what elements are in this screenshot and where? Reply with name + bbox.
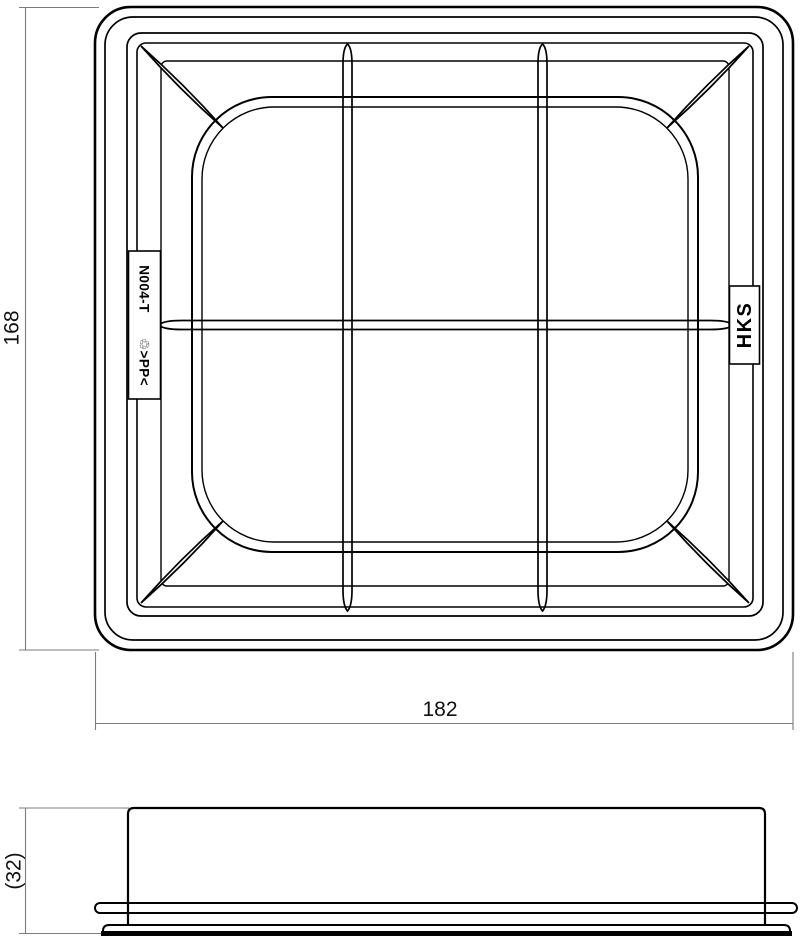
- brand-logo-text: HKS: [734, 302, 756, 349]
- inner-frame-outline-outer: [127, 33, 763, 616]
- vertical-rib-left: [343, 44, 352, 611]
- dimension-overall-width: 182: [96, 652, 794, 730]
- corner-brace-top-left: [141, 46, 223, 128]
- side-view-lip: [95, 903, 797, 913]
- dimension-overall-height: 168: [1, 8, 100, 651]
- corner-brace-top-right: [667, 46, 749, 128]
- side-view: [95, 808, 797, 936]
- drawing-canvas: N004-T ♲>PP< HKS 168 182: [0, 0, 800, 936]
- inner-frame-outline-inner: [137, 43, 753, 607]
- dimension-label-width: 182: [422, 698, 457, 721]
- part-number-plate: N004-T ♲>PP<: [129, 251, 161, 399]
- technical-drawing: N004-T ♲>PP< HKS 168 182: [0, 0, 800, 936]
- dimension-side-height: (32): [3, 808, 130, 934]
- horizontal-rib: [159, 321, 733, 330]
- corner-brace-bottom-right: [667, 521, 749, 603]
- material-mark-label: ♲>PP<: [137, 338, 152, 386]
- vertical-rib-right: [538, 44, 547, 611]
- filter-panel-outline-outer: [192, 97, 698, 552]
- frame-trim-line: [161, 61, 729, 586]
- side-view-body: [128, 808, 765, 925]
- brand-plate: HKS: [730, 286, 760, 364]
- corner-brace-bottom-left: [141, 521, 223, 603]
- dimension-label-height: 168: [1, 310, 24, 345]
- dimensions: 168 182 (32): [1, 8, 794, 934]
- part-number-label: N004-T: [137, 265, 152, 313]
- dimension-label-side-height: (32): [3, 852, 26, 889]
- filter-panel-outline-inner: [202, 107, 688, 542]
- top-view: N004-T ♲>PP< HKS: [95, 7, 793, 650]
